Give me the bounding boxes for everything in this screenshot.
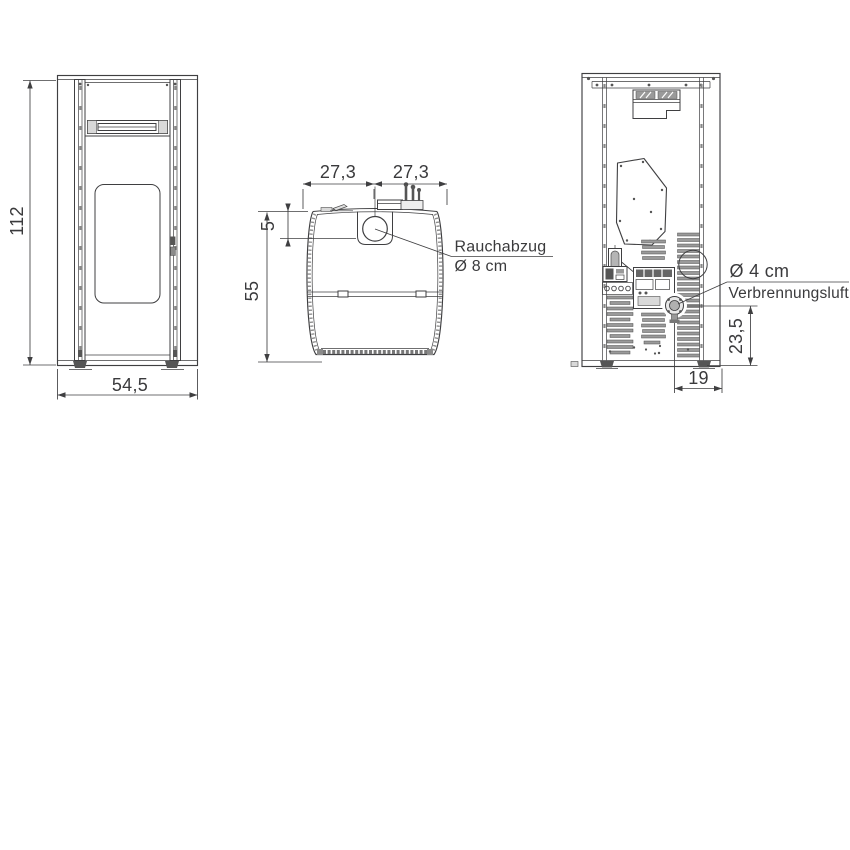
front-height-dimension: 112 bbox=[7, 81, 56, 366]
flue-circle bbox=[363, 217, 388, 242]
front-height-dim: 112 bbox=[7, 206, 27, 236]
rear-louvers-middle-top bbox=[642, 240, 666, 260]
rear-view: Ø 4 cm Verbrennungsluft 23,5 19 bbox=[571, 74, 849, 394]
front-door-window bbox=[95, 185, 160, 304]
drawing-svg: 112 54,5 bbox=[0, 0, 850, 850]
rear-socket-holes bbox=[603, 283, 633, 295]
top-view: Rauchabzug Ø 8 cm 27,3 27,3 5 bbox=[242, 162, 553, 362]
front-width-dim: 54,5 bbox=[112, 375, 148, 395]
front-air-grille bbox=[88, 121, 168, 134]
front-left-pillar bbox=[75, 80, 86, 361]
flue-label-title: Rauchabzug bbox=[455, 239, 547, 256]
top-depth-dim: 55 bbox=[242, 281, 262, 302]
stove-dimension-drawing: 112 54,5 bbox=[0, 0, 850, 850]
top-back-left-dim: 27,3 bbox=[320, 162, 356, 182]
rear-louvers-middle-bottom bbox=[642, 313, 666, 355]
air-label-diameter: Ø 4 cm bbox=[730, 261, 790, 281]
rear-left-rail bbox=[603, 78, 607, 361]
rear-fan-housing bbox=[633, 90, 680, 119]
front-view: 112 54,5 bbox=[7, 76, 198, 400]
front-width-dimension: 54,5 bbox=[58, 369, 198, 400]
rear-access-panel bbox=[617, 159, 667, 246]
flue-label-diameter: Ø 8 cm bbox=[455, 258, 508, 275]
flue-label: Rauchabzug Ø 8 cm bbox=[375, 229, 553, 275]
flue-offset-dim: 5 bbox=[258, 221, 278, 231]
rear-right-rail bbox=[700, 78, 704, 361]
rear-power-switch bbox=[603, 267, 627, 282]
air-inlet-height-dim: 23,5 bbox=[726, 318, 746, 354]
front-right-pillar bbox=[170, 80, 181, 361]
air-inlet-offset-dim: 19 bbox=[688, 368, 709, 388]
flue-offset-dimension: 5 bbox=[258, 204, 356, 247]
top-back-right-dim: 27,3 bbox=[393, 162, 429, 182]
top-pipe-fittings bbox=[401, 182, 423, 209]
top-depth-dimension: 55 bbox=[242, 213, 322, 363]
air-label-title: Verbrennungsluft bbox=[729, 285, 850, 302]
rear-louvers-left bbox=[607, 296, 633, 354]
